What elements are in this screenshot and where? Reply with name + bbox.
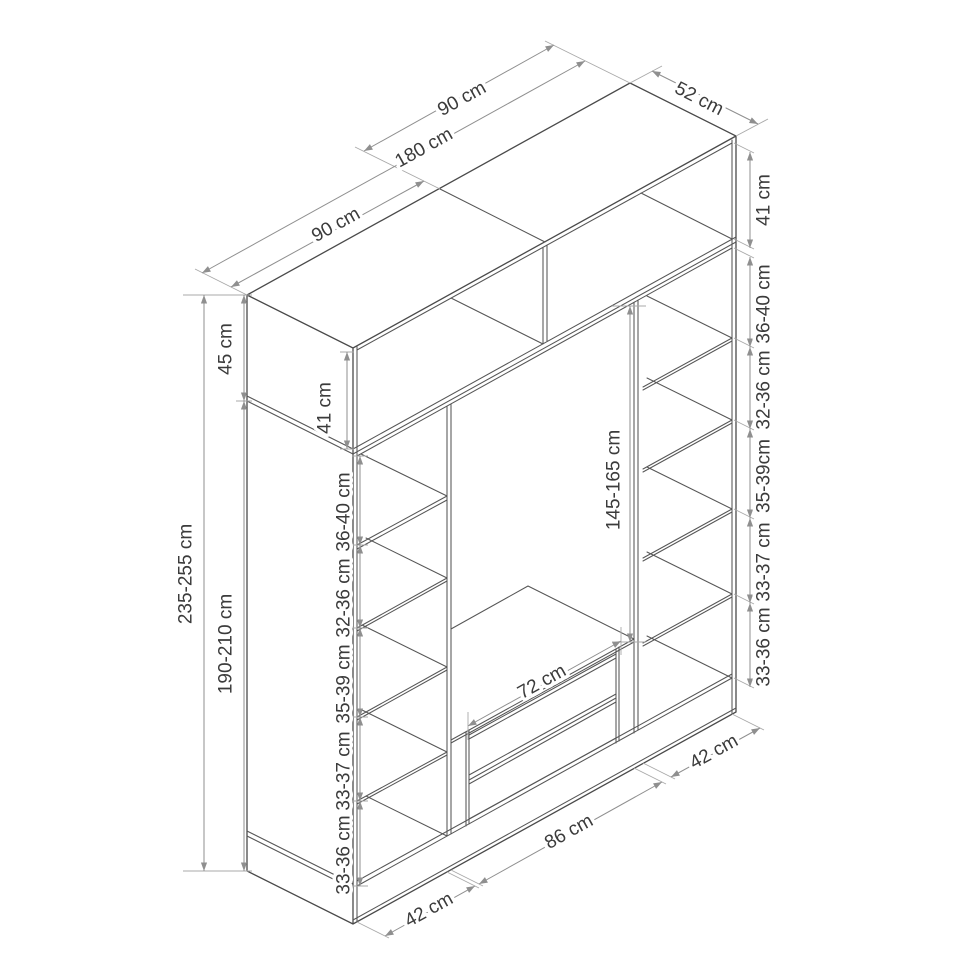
label-right-gap-5: 33-36 cm xyxy=(754,607,775,686)
label-hanging-space-height: 145-165 cm xyxy=(604,430,625,530)
label-total-height: 235-255 cm xyxy=(176,524,197,624)
main-cabinet-front xyxy=(353,248,736,920)
right-shelves xyxy=(643,296,732,678)
left-shelves xyxy=(357,454,447,836)
label-left-gap-1: 36-40 cm xyxy=(334,472,355,551)
label-depth: 52 cm xyxy=(671,78,727,120)
label-right-gap-4: 33-37 cm xyxy=(754,522,775,601)
label-main-cabinet-height: 190-210 cm xyxy=(216,594,237,694)
label-left-gap-2: 32-36 cm xyxy=(334,558,355,637)
wardrobe-dimension-diagram: 90 cm 180 cm 90 cm 52 cm 45 cm 190-210 c… xyxy=(0,0,960,960)
label-right-gap-2: 32-36 cm xyxy=(754,350,775,429)
label-bottom-left-section: 42 cm xyxy=(401,888,456,931)
label-left-gap-4: 33-37 cm xyxy=(334,731,355,810)
diagram-canvas: 90 cm 180 cm 90 cm 52 cm 45 cm 190-210 c… xyxy=(0,0,960,960)
label-left-gap-3: 35-39 cm xyxy=(334,644,355,723)
label-top-width-total: 180 cm xyxy=(392,124,457,173)
cabinet-outline xyxy=(247,83,736,924)
label-top-cabinet-inner-left: 41 cm xyxy=(315,382,336,434)
label-top-width-right-half: 90 cm xyxy=(434,77,489,120)
label-bottom-middle-section: 86 cm xyxy=(541,810,596,853)
label-bottom-right-section: 42 cm xyxy=(686,730,741,773)
label-right-gap-1: 36-40 cm xyxy=(754,264,775,343)
label-left-gap-5: 33-36 cm xyxy=(334,815,355,894)
hanging-section xyxy=(451,586,634,743)
top-cabinet-front xyxy=(353,140,736,922)
label-hanging-space-width: 72 cm xyxy=(514,660,569,703)
top-face xyxy=(440,189,545,242)
label-top-cabinet-height: 45 cm xyxy=(216,323,237,375)
dim-top-width-total xyxy=(202,61,585,273)
label-right-gap-3: 35-39cm xyxy=(754,439,775,513)
left-side-panel xyxy=(247,396,353,889)
label-top-cabinet-inner-right: 41 cm xyxy=(754,174,775,226)
extension-lines xyxy=(183,41,768,938)
